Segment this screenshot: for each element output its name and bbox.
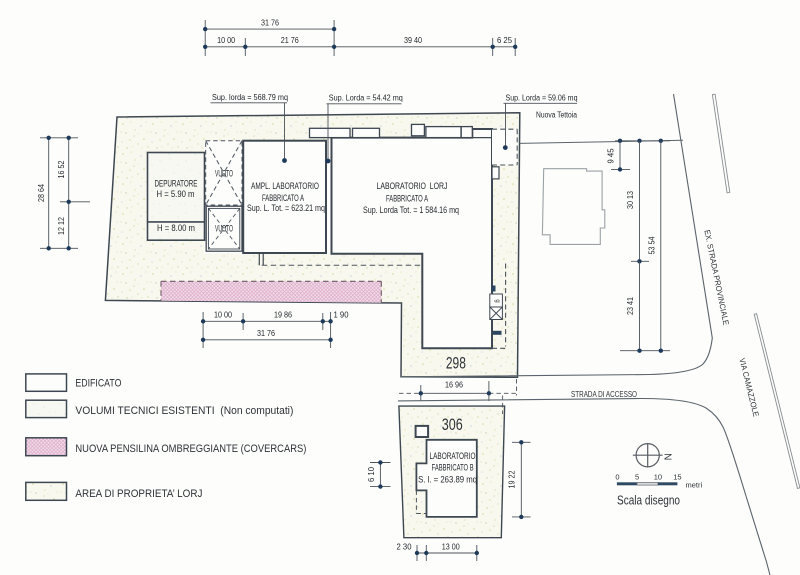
svg-text:STRADA DI ACCESSO: STRADA DI ACCESSO bbox=[571, 389, 637, 399]
svg-text:metri: metri bbox=[686, 481, 703, 490]
svg-text:VUOTO: VUOTO bbox=[215, 169, 233, 179]
svg-text:g: g bbox=[494, 299, 500, 302]
svg-text:FABBRICATO A: FABBRICATO A bbox=[386, 194, 428, 204]
svg-text:Sup. Lorda Tot. = 1 584.16 mq: Sup. Lorda Tot. = 1 584.16 mq bbox=[363, 205, 459, 215]
svg-text:VUOTO: VUOTO bbox=[215, 224, 233, 234]
svg-text:0: 0 bbox=[615, 472, 619, 481]
svg-text:5: 5 bbox=[635, 472, 639, 481]
svg-text:AMPL. LABORATORIO: AMPL. LABORATORIO bbox=[251, 181, 319, 191]
svg-text:9 45: 9 45 bbox=[607, 148, 616, 164]
svg-text:13 00: 13 00 bbox=[442, 543, 460, 552]
svg-text:Sup. Lorda = 54.42 mq: Sup. Lorda = 54.42 mq bbox=[329, 93, 403, 102]
svg-text:N: N bbox=[662, 453, 673, 460]
svg-text:23 41: 23 41 bbox=[626, 297, 635, 315]
svg-text:FABBRICATO A: FABBRICATO A bbox=[262, 193, 304, 203]
svg-text:53 54: 53 54 bbox=[648, 236, 657, 254]
svg-text:28 64: 28 64 bbox=[37, 184, 46, 202]
svg-text:FABBRICATO B: FABBRICATO B bbox=[432, 463, 474, 473]
svg-text:19 86: 19 86 bbox=[274, 310, 292, 319]
svg-text:306: 306 bbox=[442, 416, 463, 434]
svg-text:Nuova Tettoia: Nuova Tettoia bbox=[536, 111, 577, 120]
svg-text:H = 8.00 m: H = 8.00 m bbox=[157, 223, 195, 233]
svg-text:21 76: 21 76 bbox=[281, 36, 299, 45]
svg-text:10: 10 bbox=[654, 472, 662, 481]
svg-text:Sup. L. Tot. = 623.21 mq: Sup. L. Tot. = 623.21 mq bbox=[247, 203, 325, 213]
svg-text:2 30: 2 30 bbox=[397, 543, 413, 552]
svg-text:LABORATORIO LORJ: LABORATORIO LORJ bbox=[377, 181, 448, 191]
svg-text:16 52: 16 52 bbox=[57, 160, 66, 178]
svg-text:31 76: 31 76 bbox=[257, 329, 275, 338]
svg-text:Sup. lorda = 568.79 mq: Sup. lorda = 568.79 mq bbox=[212, 93, 288, 102]
svg-text:39 40: 39 40 bbox=[404, 36, 422, 45]
svg-text:1 90: 1 90 bbox=[334, 310, 350, 319]
svg-text:31 76: 31 76 bbox=[261, 19, 279, 28]
svg-text:S. l. = 263.89 mq: S. l. = 263.89 mq bbox=[418, 474, 477, 484]
svg-text:NUOVA PENSILINA OMBREGGIANTE (: NUOVA PENSILINA OMBREGGIANTE (COVERCARS) bbox=[75, 443, 306, 455]
svg-text:LABORATORIO: LABORATORIO bbox=[430, 451, 476, 461]
svg-text:VOLUMI TECNICI ESISTENTI (Non: VOLUMI TECNICI ESISTENTI (Non computati) bbox=[75, 405, 293, 417]
svg-text:6 25: 6 25 bbox=[497, 36, 513, 45]
svg-text:19 22: 19 22 bbox=[508, 470, 517, 488]
svg-text:298: 298 bbox=[446, 354, 466, 372]
svg-text:EDIFICATO: EDIFICATO bbox=[75, 378, 121, 390]
svg-text:DEPURATORE: DEPURATORE bbox=[155, 179, 198, 189]
svg-text:Scala disegno: Scala disegno bbox=[617, 493, 680, 508]
svg-text:Sup. Lorda = 59.06 mq: Sup. Lorda = 59.06 mq bbox=[506, 94, 578, 103]
svg-text:H = 5.90 m: H = 5.90 m bbox=[157, 189, 195, 199]
svg-text:16 96: 16 96 bbox=[445, 381, 463, 390]
svg-text:15: 15 bbox=[673, 472, 681, 481]
svg-text:10 00: 10 00 bbox=[214, 310, 232, 319]
svg-text:10 00: 10 00 bbox=[217, 36, 235, 45]
svg-text:6 10: 6 10 bbox=[367, 466, 376, 482]
svg-text:AREA DI PROPRIETA’ LORJ: AREA DI PROPRIETA’ LORJ bbox=[75, 488, 202, 500]
svg-text:12 12: 12 12 bbox=[57, 217, 66, 235]
svg-text:30 13: 30 13 bbox=[626, 191, 635, 209]
